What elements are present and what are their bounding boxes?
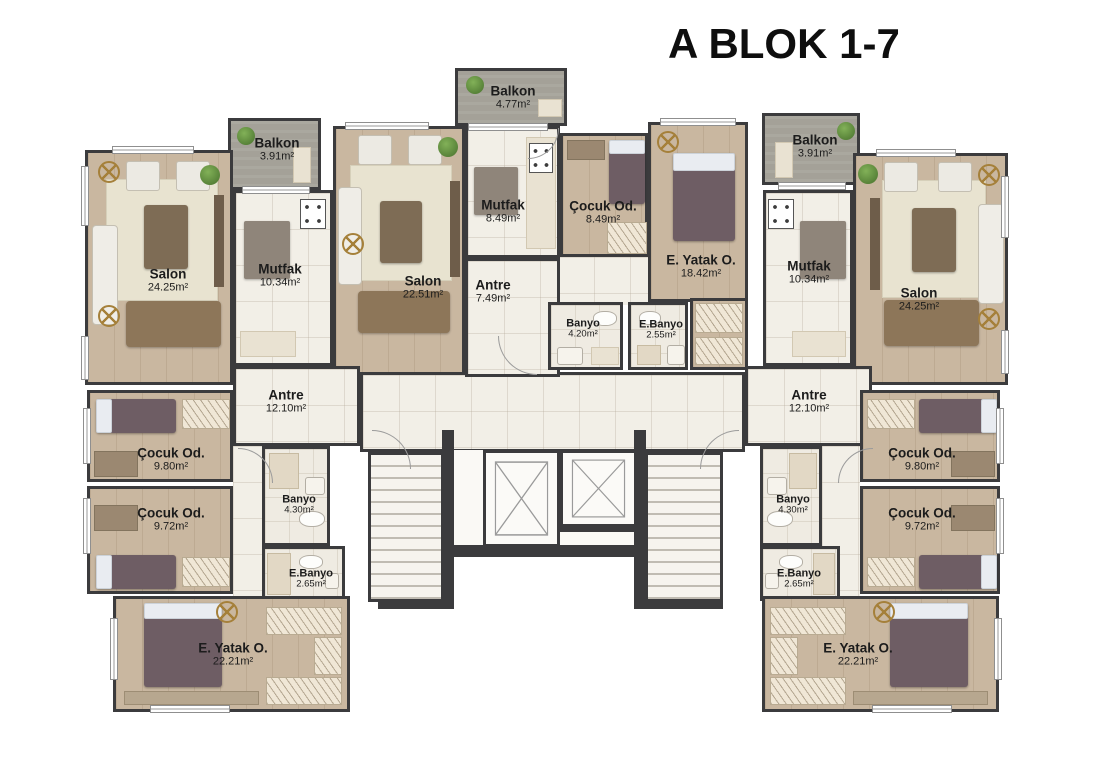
room-name-label: Antre [789, 387, 829, 402]
room-area-label: 4.30m² [776, 506, 810, 517]
pillow [144, 603, 222, 619]
corridor [360, 372, 745, 452]
sink [557, 347, 583, 365]
wardrobe [770, 637, 798, 675]
window [876, 149, 956, 157]
room-right-ebanyo: E.Banyo2.65m² [760, 546, 840, 601]
pillow [673, 153, 735, 171]
dining-table [126, 301, 221, 347]
wardrobe [266, 607, 342, 635]
planter-box [538, 99, 562, 117]
armchair [358, 135, 392, 165]
shower [267, 553, 291, 595]
window [660, 118, 736, 126]
desk [951, 451, 995, 477]
vanity-counter [591, 347, 619, 365]
room-name-label: Mutfak [787, 258, 831, 273]
room-center-ebanyo: E.Banyo2.55m² [628, 302, 688, 370]
room-name-label: Salon [403, 273, 443, 288]
room-right-mutfak: Mutfak10.34m² [763, 190, 853, 366]
plant-icon [438, 137, 458, 157]
armchair [938, 162, 972, 192]
room-name-label: Çocuk Od. [888, 445, 956, 460]
room-name-label: E. Yatak O. [823, 640, 893, 655]
plant-icon [200, 165, 220, 185]
elevator-shaft-2 [560, 450, 637, 527]
room-name-label: E. Yatak O. [666, 252, 736, 267]
staircase-left [368, 452, 444, 602]
room-area-label: 18.42m² [666, 267, 736, 279]
window [83, 498, 91, 554]
pillow [890, 603, 968, 619]
room-right-banyo: Banyo4.30m² [760, 446, 822, 546]
tv-console [450, 181, 460, 277]
room-area-label: 7.49m² [475, 292, 510, 304]
room-area-label: 2.65m² [777, 580, 821, 591]
room-area-label: 24.25m² [148, 281, 188, 293]
room-left-banyo: Banyo4.30m² [262, 446, 330, 546]
window [150, 705, 230, 713]
armchair [884, 162, 918, 192]
pillow [96, 555, 112, 589]
room-center-cocuk: Çocuk Od.8.49m² [560, 133, 648, 257]
bench [124, 691, 259, 705]
room-name-label: Salon [899, 285, 939, 300]
room-name-label: Antre [475, 277, 510, 292]
desk [951, 505, 995, 531]
pillow [981, 399, 997, 433]
shower [637, 345, 661, 365]
elevator-shaft-1 [483, 450, 560, 547]
sink [667, 345, 685, 365]
room-area-label: 9.80m² [137, 460, 205, 472]
wardrobe [770, 607, 846, 635]
plan-title: A BLOK 1-7 [668, 20, 900, 68]
room-area-label: 4.30m² [282, 506, 316, 517]
room-right-balkon: Balkon3.91m² [762, 113, 860, 185]
window [81, 166, 89, 226]
room-name-label: Antre [266, 387, 306, 402]
window [345, 122, 429, 130]
room-name-label: Balkon [254, 135, 299, 150]
room-name-label: Mutfak [258, 261, 302, 276]
room-area-label: 3.91m² [254, 150, 299, 162]
desk [94, 505, 138, 531]
bench [853, 691, 988, 705]
room-left-mutfak: Mutfak10.34m² [233, 190, 333, 366]
room-center-salon: Salon22.51m² [333, 126, 465, 375]
room-right-salon: Salon24.25m² [853, 153, 1008, 385]
wardrobe [182, 557, 230, 587]
room-name-label: Mutfak [481, 197, 525, 212]
ceiling-fan-icon [978, 164, 1000, 186]
room-name-label: E. Yatak O. [198, 640, 268, 655]
plant-icon [858, 164, 878, 184]
room-area-label: 9.72m² [137, 520, 205, 532]
elevator-x-icon [563, 453, 634, 524]
coffee-table [912, 208, 956, 272]
ceiling-fan-icon [98, 305, 120, 327]
pillow [981, 555, 997, 589]
room-left-balkon: Balkon3.91m² [228, 118, 321, 190]
center-wardrobe-area [690, 298, 748, 370]
room-name-label: Balkon [792, 132, 837, 147]
balcony-door-window [468, 123, 548, 131]
wardrobe [314, 637, 342, 675]
shower [789, 453, 817, 489]
room-area-label: 4.77m² [490, 98, 535, 110]
wardrobe [695, 337, 743, 365]
window [994, 618, 1002, 680]
room-right-yatak: E. Yatak O.22.21m² [762, 596, 999, 712]
window [1001, 176, 1009, 238]
desk [94, 451, 138, 477]
ceiling-fan-icon [873, 601, 895, 623]
room-right-cocuk-1: Çocuk Od.9.80m² [860, 390, 1000, 482]
room-center-balkon: Balkon4.77m² [455, 68, 567, 126]
staircase-right [645, 452, 723, 602]
room-left-ebanyo: E.Banyo2.65m² [262, 546, 345, 601]
stove-icon [300, 199, 326, 229]
room-area-label: 9.72m² [888, 520, 956, 532]
armchair [408, 135, 442, 165]
room-area-label: 24.25m² [899, 300, 939, 312]
room-area-label: 8.49m² [569, 213, 637, 225]
sink [305, 477, 325, 495]
elevator-x-icon [486, 453, 557, 544]
planter-box [775, 142, 793, 178]
room-area-label: 10.34m² [258, 276, 302, 288]
window [110, 618, 118, 680]
room-area-label: 3.91m² [792, 147, 837, 159]
balcony-door-window [778, 182, 846, 190]
tv-console [214, 195, 224, 287]
balcony-door-window [242, 186, 310, 194]
wardrobe [182, 399, 230, 429]
room-name-label: Çocuk Od. [137, 445, 205, 460]
window [81, 336, 89, 380]
ceiling-fan-icon [657, 131, 679, 153]
room-center-banyo: Banyo4.20m² [548, 302, 623, 370]
room-name-label: Çocuk Od. [569, 198, 637, 213]
kitchen-counter [792, 331, 846, 357]
center-unit-hall [558, 257, 650, 305]
room-left-antre: Antre12.10m² [233, 366, 360, 446]
room-right-antre: Antre12.10m² [745, 366, 872, 446]
wardrobe [770, 677, 846, 705]
wardrobe [867, 399, 915, 429]
pillow [96, 399, 112, 433]
pillow [609, 140, 645, 154]
window [1001, 330, 1009, 374]
kitchen-counter [240, 331, 296, 357]
armchair [126, 161, 160, 191]
stove-icon [768, 199, 794, 229]
room-area-label: 10.34m² [787, 273, 831, 285]
desk [567, 140, 605, 160]
room-area-label: 12.10m² [789, 402, 829, 414]
room-area-label: 2.65m² [289, 580, 333, 591]
ceiling-fan-icon [98, 161, 120, 183]
ceiling-fan-icon [216, 601, 238, 623]
room-name-label: Çocuk Od. [888, 505, 956, 520]
room-area-label: 22.51m² [403, 288, 443, 300]
plant-icon [237, 127, 255, 145]
wardrobe [695, 303, 743, 333]
room-area-label: 8.49m² [481, 212, 525, 224]
room-center-yatak: E. Yatak O.18.42m² [648, 122, 748, 302]
plant-icon [837, 122, 855, 140]
room-name-label: Çocuk Od. [137, 505, 205, 520]
window [83, 408, 91, 464]
window [872, 705, 952, 713]
wardrobe [266, 677, 342, 705]
room-left-cocuk-1: Çocuk Od.9.80m² [87, 390, 233, 482]
window [996, 408, 1004, 464]
window [112, 146, 194, 154]
room-left-yatak: E. Yatak O.22.21m² [113, 596, 350, 712]
wardrobe [867, 557, 915, 587]
room-area-label: 4.20m² [566, 330, 600, 341]
room-area-label: 2.55m² [639, 331, 683, 342]
room-right-cocuk-2: Çocuk Od.9.72m² [860, 486, 1000, 594]
room-name-label: Balkon [490, 83, 535, 98]
plant-icon [466, 76, 484, 94]
room-area-label: 9.80m² [888, 460, 956, 472]
room-area-label: 12.10m² [266, 402, 306, 414]
coffee-table [144, 205, 188, 269]
shower [269, 453, 299, 489]
room-name-label: Salon [148, 266, 188, 281]
room-left-salon: Salon24.25m² [85, 150, 233, 385]
room-area-label: 22.21m² [198, 655, 268, 667]
coffee-table [380, 201, 422, 263]
room-left-cocuk-2: Çocuk Od.9.72m² [87, 486, 233, 594]
sink [767, 477, 787, 495]
tv-console [870, 198, 880, 290]
wardrobe [607, 222, 647, 254]
window [996, 498, 1004, 554]
ceiling-fan-icon [978, 308, 1000, 330]
room-area-label: 22.21m² [823, 655, 893, 667]
ceiling-fan-icon [342, 233, 364, 255]
floor-plan: A BLOK 1-7 Balkon3.91m² Balkon4.77m² Bal… [0, 0, 1112, 768]
